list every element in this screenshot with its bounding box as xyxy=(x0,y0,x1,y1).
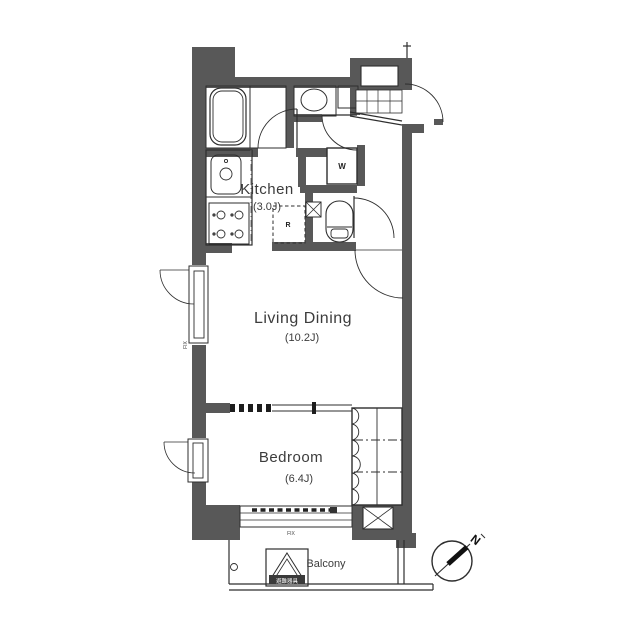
wall-bedroom-partition xyxy=(206,403,230,413)
bedroom-label: Bedroom xyxy=(259,449,323,466)
wall-toilet-top xyxy=(300,185,357,193)
wall-vanity-kitchen xyxy=(296,148,327,157)
kitchen-sink xyxy=(211,155,241,194)
burner-3 xyxy=(217,230,225,238)
burner-dot-2 xyxy=(231,214,233,216)
fix-label-living: FIX xyxy=(183,340,189,348)
wall-bath-vanity xyxy=(286,85,294,148)
burner-dot-3 xyxy=(213,233,215,235)
toilet-tank xyxy=(331,229,348,238)
north-label: N xyxy=(468,532,483,548)
vanity-door-arc xyxy=(322,115,357,150)
fridge-label: R xyxy=(285,222,290,229)
burner-2 xyxy=(235,211,243,219)
wall-corridor-left xyxy=(298,157,306,187)
bedroom-window xyxy=(164,439,208,482)
floor-plan: Kitchen (3.0J) Living Dining (10.2J) Bed… xyxy=(0,0,640,640)
closet xyxy=(352,408,402,505)
wall-left-lower xyxy=(192,482,206,505)
vanity-basin xyxy=(301,89,327,111)
living-window-frame xyxy=(189,266,208,343)
balcony-label: Balcony xyxy=(306,558,346,570)
compass-needle-thick xyxy=(448,547,467,564)
burner-dot-1 xyxy=(213,214,215,216)
pipe-space xyxy=(363,507,393,529)
walls xyxy=(192,47,443,548)
entrance-step-2 xyxy=(350,116,402,125)
toilet-door-arc xyxy=(354,198,394,238)
wall-bottom-left-block xyxy=(192,505,240,540)
wall-left-mid xyxy=(192,345,206,438)
bedroom-window-frame xyxy=(188,439,208,482)
door-end-tick xyxy=(434,119,443,125)
burner-4 xyxy=(235,230,243,238)
fix-label-balcony: FIX xyxy=(287,531,295,537)
bedroom-size: (6.4J) xyxy=(285,473,313,485)
kitchen-size: (3.0J) xyxy=(253,201,281,213)
balcony-window-lock xyxy=(330,507,337,513)
hatch-label: 避難器具 xyxy=(276,577,299,585)
room-partition xyxy=(230,402,352,414)
wall-bath-kitchen xyxy=(206,148,258,157)
wall-washer-right xyxy=(357,145,365,186)
burner-dot-4 xyxy=(231,233,233,235)
sink-faucet xyxy=(224,159,227,162)
stove xyxy=(209,203,249,244)
sink-drain xyxy=(220,168,232,180)
wall-toilet-left xyxy=(305,193,313,243)
bathtub-inner xyxy=(213,91,243,142)
partition-stop xyxy=(312,402,316,414)
bathtub-outer xyxy=(210,88,246,145)
balcony-drain xyxy=(231,564,238,571)
shoe-cabinet xyxy=(361,66,398,86)
wall-left-upper xyxy=(192,85,206,265)
floor-plan-svg: Kitchen (3.0J) Living Dining (10.2J) Bed… xyxy=(0,0,640,640)
balcony-window xyxy=(240,506,352,527)
toilet-bowl xyxy=(326,201,353,242)
kitchen-label: Kitchen xyxy=(240,181,294,198)
wall-balcony-divider-anchor xyxy=(396,533,416,548)
wall-living-top xyxy=(272,242,356,251)
vanity-counter xyxy=(294,86,336,116)
entrance-tiles xyxy=(356,90,402,113)
wall-right-stub xyxy=(412,124,424,133)
wall-right xyxy=(402,124,412,540)
burner-1 xyxy=(217,211,225,219)
living-label: Living Dining xyxy=(254,310,352,327)
living-size: (10.2J) xyxy=(285,332,319,344)
closet-folding-doors xyxy=(352,408,360,505)
living-door-arc xyxy=(355,250,403,298)
wall-vanity-front xyxy=(294,114,322,122)
living-window xyxy=(160,266,208,343)
washer-label: W xyxy=(338,162,346,171)
